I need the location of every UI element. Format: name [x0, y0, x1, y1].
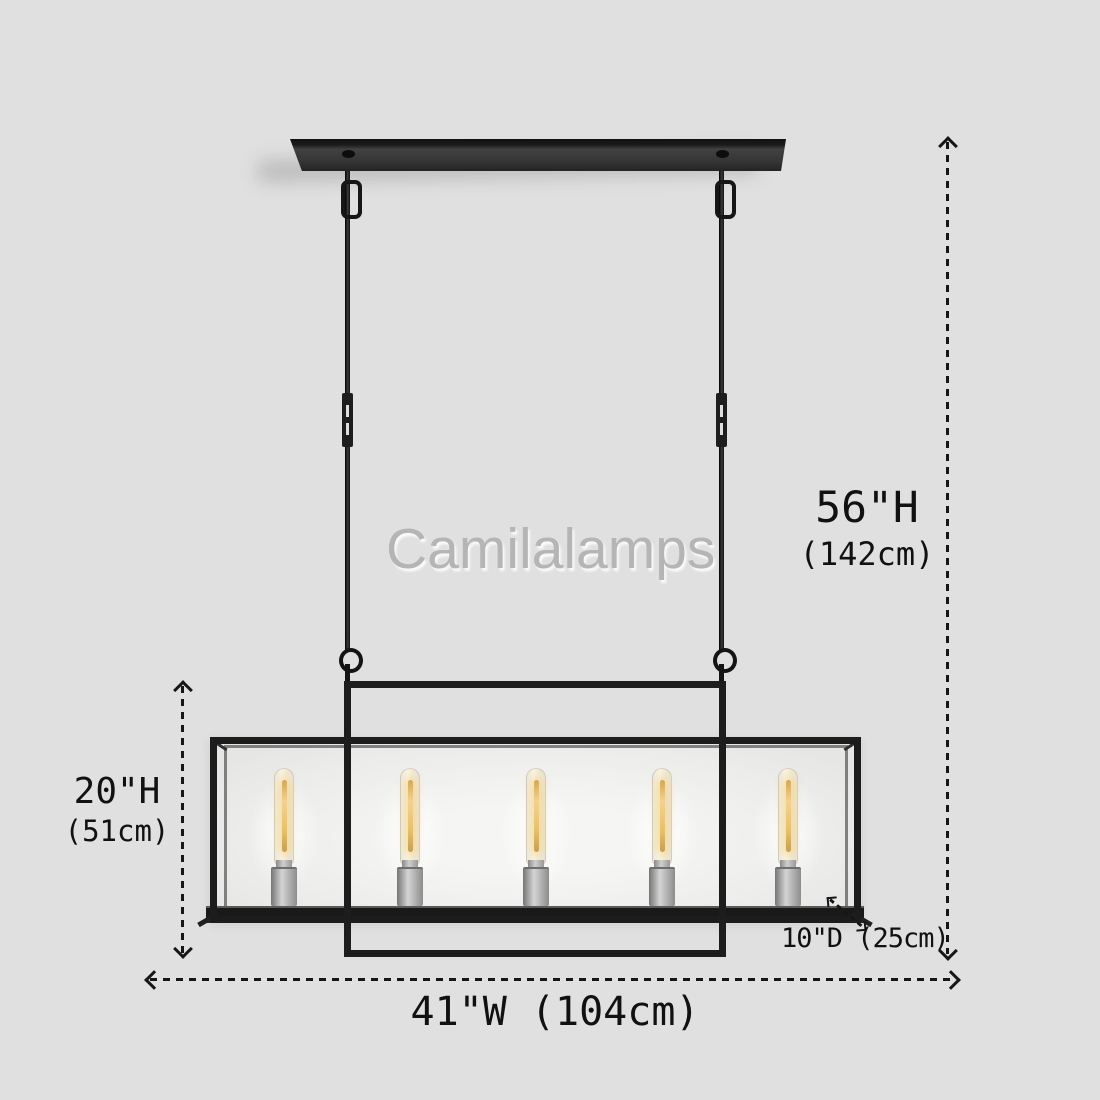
rod-eye-loop-right: [713, 648, 737, 673]
arrow-left-icon: [827, 896, 838, 907]
shade-height-label: 20"H (51cm): [42, 773, 192, 846]
product-dimension-diagram: Camilalamps: [0, 0, 1100, 1100]
arrow-left-icon: [144, 970, 164, 990]
canopy-bolt-right: [716, 150, 729, 158]
rod-clasp-right: [715, 180, 736, 219]
suspension-frame: [344, 681, 726, 957]
shade-height-metric: (51cm): [42, 816, 192, 846]
arrow-right-icon: [941, 970, 961, 990]
arrow-up-icon: [938, 136, 958, 156]
shade-height-imperial: 20"H: [42, 773, 192, 811]
watermark: Camilalamps: [386, 516, 726, 582]
overall-height-imperial: 56"H: [772, 486, 962, 531]
rod-clasp-left: [341, 180, 362, 219]
overall-height-metric: (142cm): [772, 538, 962, 572]
arrow-down-icon: [173, 939, 193, 959]
ceiling-canopy: [290, 139, 786, 171]
arrow-up-icon: [173, 680, 193, 700]
rod-turnbuckle-left: [342, 393, 353, 447]
width-label: 41"W (104cm): [330, 991, 780, 1033]
rod-turnbuckle-right: [716, 393, 727, 447]
rod-eye-loop-left: [339, 648, 363, 673]
canopy-bolt-left: [342, 150, 355, 158]
width-dimension-line: [150, 978, 956, 981]
overall-height-label: 56"H (142cm): [772, 486, 962, 572]
depth-label: 10"D (25cm): [781, 925, 1021, 953]
